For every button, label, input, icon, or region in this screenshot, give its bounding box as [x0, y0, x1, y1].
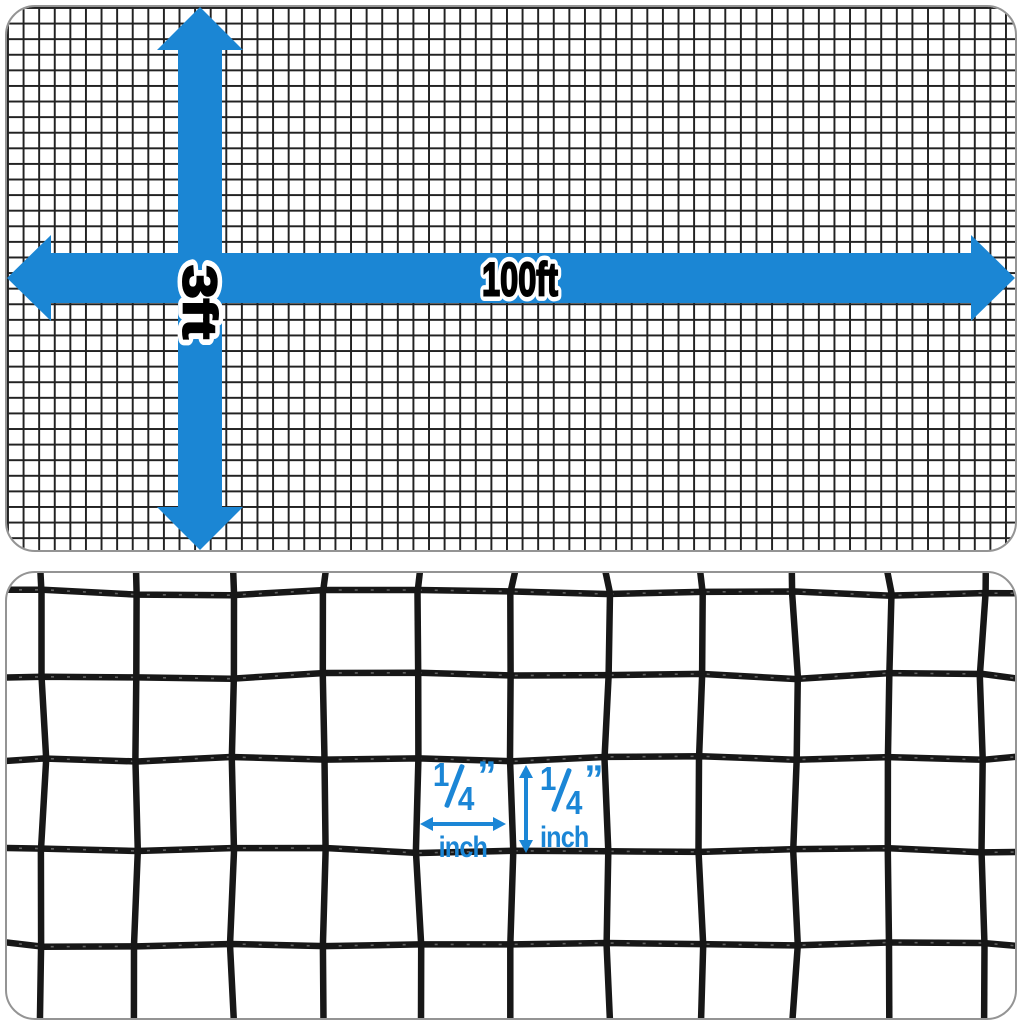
height-value-label: 3ft	[174, 265, 227, 339]
mesh-wire	[605, 573, 611, 1018]
opening-height-unit: inch	[540, 823, 588, 853]
inch-double-prime: ”	[584, 765, 600, 796]
mesh-wire	[134, 573, 138, 1018]
quarter-fraction: 1 4	[433, 761, 475, 811]
fraction-denominator: 4	[458, 782, 475, 815]
mesh-roll-dimensions-panel: 3ft 3ft 100ft 100ft	[5, 5, 1017, 552]
mesh-wire	[792, 573, 798, 1018]
fraction-numerator: 1	[540, 762, 557, 795]
product-dimension-image: 3ft 3ft 100ft 100ft 1 4 ”	[0, 0, 1024, 1022]
mesh-closeup-panel: 1 4 ” inch 1	[5, 571, 1017, 1020]
width-value-label: 100ft	[482, 253, 558, 306]
mesh-wire	[699, 573, 704, 1018]
mesh-wire	[980, 573, 986, 1018]
quarter-fraction: 1 4	[540, 765, 582, 815]
opening-height-arrow-icon	[517, 765, 535, 853]
mesh-wire	[887, 573, 892, 1018]
inch-double-prime: ”	[477, 761, 493, 792]
fraction-denominator: 4	[566, 786, 583, 819]
mesh-wire	[323, 573, 326, 1018]
opening-width-unit: inch	[439, 833, 487, 863]
opening-height-label: 1 4 ” inch	[517, 765, 601, 853]
mesh-wire	[40, 573, 46, 1018]
opening-width-value: 1 4 ”	[413, 761, 513, 811]
fraction-numerator: 1	[432, 758, 449, 791]
dimension-arrows-overlay: 3ft 3ft 100ft 100ft	[7, 7, 1015, 550]
mesh-wire	[230, 573, 234, 1018]
opening-height-value: 1 4 ” inch	[540, 765, 601, 853]
opening-width-label: 1 4 ” inch	[413, 761, 513, 863]
